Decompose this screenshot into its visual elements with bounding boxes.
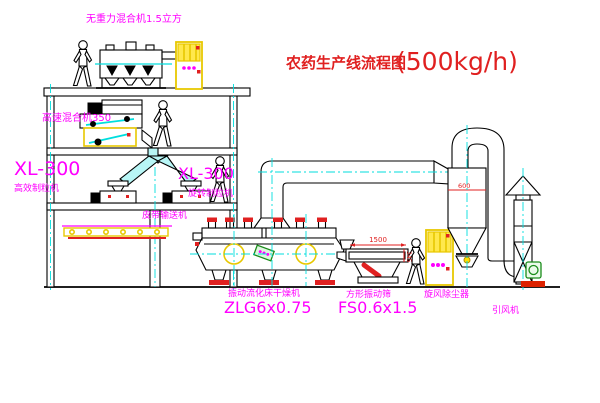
label-screen-model: FS0.6x1.5 <box>338 298 417 317</box>
floor-slab-mid <box>47 148 237 155</box>
control-cabinet-ground <box>426 230 453 285</box>
label-gravity-free-mixer: 无重力混合机1.5立方 <box>86 12 182 25</box>
label-granulator-left-name: 高效制粒机 <box>14 182 59 194</box>
exhaust-duct <box>254 161 452 228</box>
label-dryer-model: ZLG6x0.75 <box>224 298 312 317</box>
label-granulator-right-name: 旋转制粒机 <box>188 187 233 199</box>
label-fan: 引风机 <box>492 304 519 316</box>
person-figure <box>154 101 172 146</box>
person-figure <box>74 41 92 86</box>
granulator-left <box>91 186 136 203</box>
dim-screen-length: 1500 <box>369 236 387 244</box>
dim-cyclone: 600 <box>458 182 470 190</box>
drawing-title: 农药生产线流程图 <box>285 54 406 72</box>
label-belt-conveyor: 皮带输送机 <box>142 209 187 221</box>
drawing-capacity: (500kg/h) <box>396 47 518 76</box>
cyclone-dust-collector <box>448 125 520 290</box>
label-granulator-right-model: XL-300 <box>178 164 234 183</box>
label-granulator-left-model: XL-300 <box>14 158 80 180</box>
cad-canvas: 农药生产线流程图 (500kg/h) 无重力混合机1.5立方 高速混合机350 … <box>0 0 600 403</box>
label-cyclone: 旋风除尘器 <box>424 288 469 300</box>
process-flow-drawing: 农药生产线流程图 (500kg/h) 无重力混合机1.5立方 高速混合机350 … <box>0 0 600 403</box>
square-vibrating-screen <box>337 240 408 283</box>
feed-pipe <box>148 148 158 156</box>
dim-screen-height: 345 <box>405 251 412 263</box>
belt-conveyor <box>62 226 172 238</box>
floor-slab-platform <box>47 203 237 210</box>
control-cabinet-roof <box>176 42 202 89</box>
floor-slab-top <box>44 88 250 96</box>
fan-base <box>521 281 545 287</box>
label-high-speed-mixer: 高速混合机350 <box>42 111 111 124</box>
gravity-free-mixer <box>95 42 176 88</box>
